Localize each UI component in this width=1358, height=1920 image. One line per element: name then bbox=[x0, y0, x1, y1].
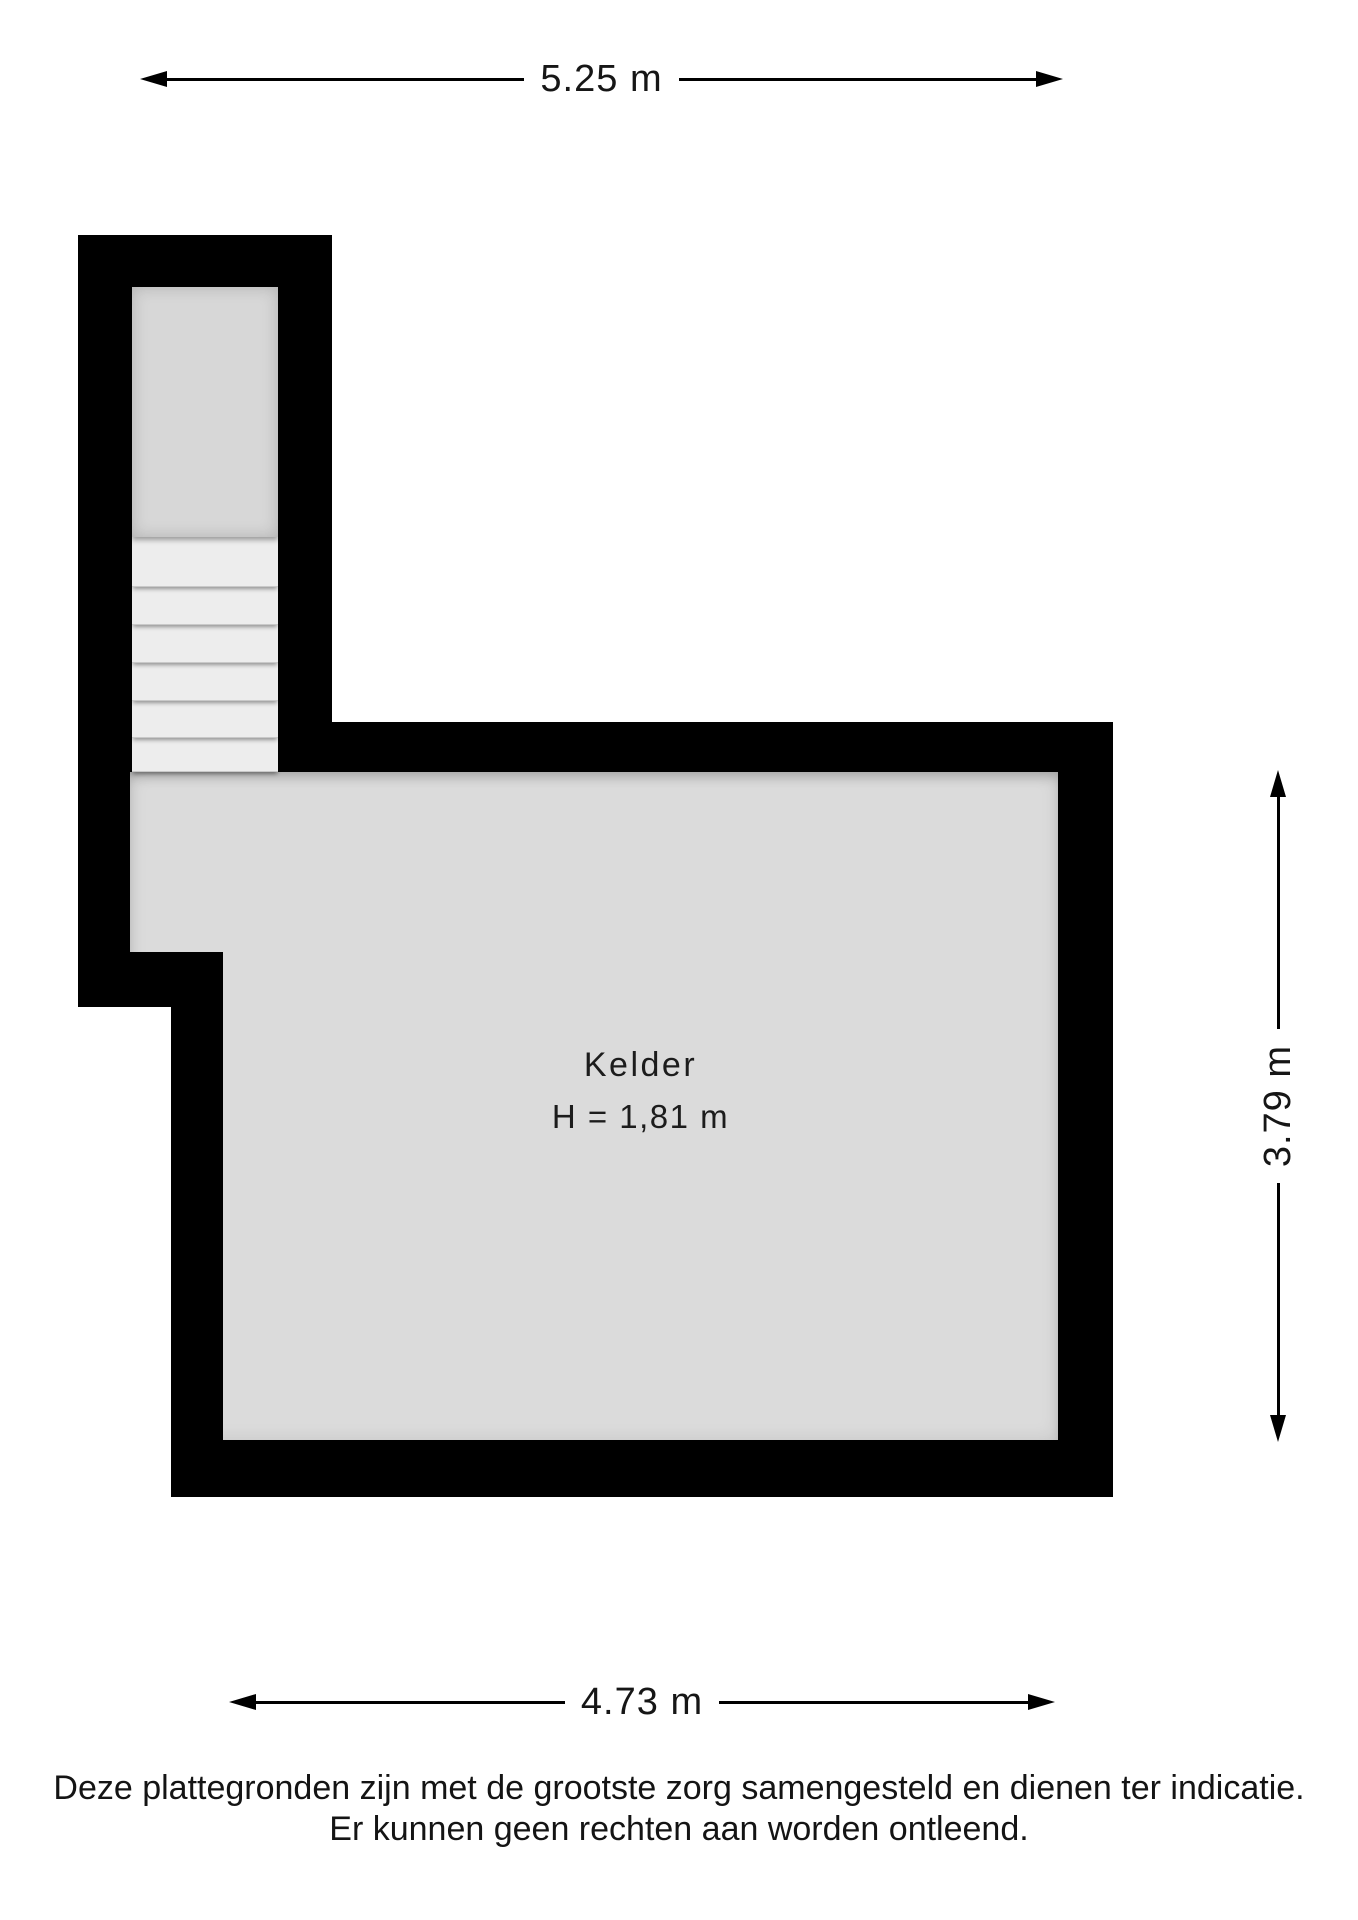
room-height-label: H = 1,81 m bbox=[223, 1100, 1058, 1133]
dimension-bottom: 4.73 m bbox=[229, 1679, 1055, 1725]
staircase bbox=[132, 287, 278, 772]
arrowhead-left-icon bbox=[140, 71, 167, 87]
stair-step bbox=[132, 663, 278, 701]
stair-step bbox=[132, 701, 278, 738]
dimension-line bbox=[167, 78, 524, 81]
dimension-top-label: 5.25 m bbox=[524, 58, 678, 101]
disclaimer-line-2: Er kunnen geen rechten aan worden ontlee… bbox=[0, 1809, 1358, 1850]
arrowhead-down-icon bbox=[1270, 1415, 1286, 1442]
stair-step bbox=[132, 587, 278, 625]
stair-step bbox=[132, 537, 278, 587]
dimension-right-label: 3.79 m bbox=[1257, 1029, 1300, 1183]
dimension-line bbox=[256, 1701, 565, 1704]
dimension-line bbox=[719, 1701, 1028, 1704]
stair-step bbox=[132, 625, 278, 663]
room-name-label: Kelder bbox=[223, 1048, 1058, 1082]
arrowhead-right-icon bbox=[1028, 1694, 1055, 1710]
arrowhead-left-icon bbox=[229, 1694, 256, 1710]
stair-landing bbox=[132, 287, 278, 537]
stair-step bbox=[132, 738, 278, 772]
arrowhead-up-icon bbox=[1270, 770, 1286, 797]
floorplan-canvas: 5.25 m Kelder H = 1,81 m 3.79 m 4.73 m D… bbox=[0, 0, 1358, 1920]
dimension-top: 5.25 m bbox=[140, 56, 1063, 102]
dimension-line bbox=[1277, 1183, 1280, 1415]
staircase-steps bbox=[132, 537, 278, 772]
arrowhead-right-icon bbox=[1036, 71, 1063, 87]
disclaimer: Deze plattegronden zijn met de grootste … bbox=[0, 1768, 1358, 1851]
dimension-line bbox=[679, 78, 1036, 81]
dimension-line bbox=[1277, 797, 1280, 1029]
room-labels: Kelder H = 1,81 m bbox=[223, 1048, 1058, 1133]
dimension-right: 3.79 m bbox=[1254, 770, 1302, 1442]
dimension-bottom-label: 4.73 m bbox=[565, 1681, 719, 1724]
disclaimer-line-1: Deze plattegronden zijn met de grootste … bbox=[0, 1768, 1358, 1809]
